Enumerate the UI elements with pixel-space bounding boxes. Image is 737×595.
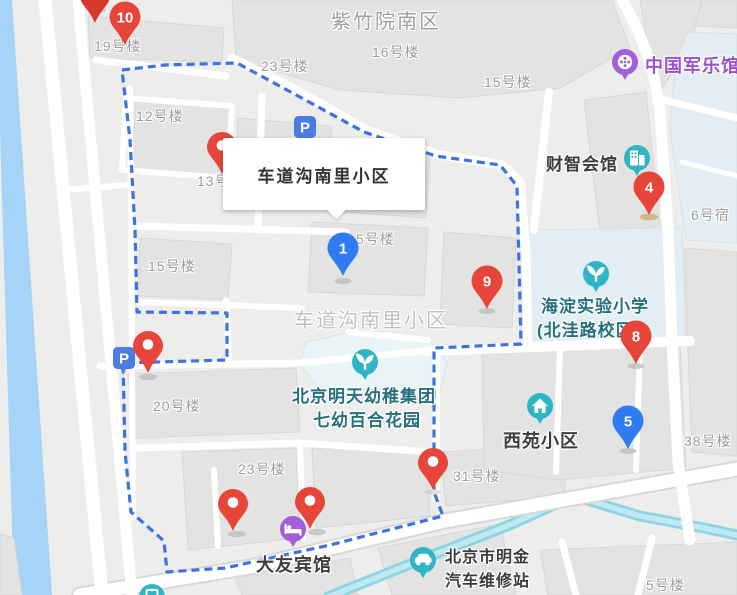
marker-10[interactable]: 10 [108, 0, 142, 49]
location-pin[interactable] [131, 329, 165, 377]
building-label: 16号楼 [372, 42, 420, 62]
building-label: 20号楼 [153, 396, 201, 416]
building-label: 23号楼 [261, 56, 309, 76]
info-window-title: 车道沟南里小区 [258, 162, 391, 187]
parking-letter: P [300, 120, 310, 137]
building-label: 38号楼 [684, 431, 732, 451]
car-icon[interactable] [408, 545, 438, 585]
location-pin[interactable] [293, 485, 327, 533]
music-reel-icon[interactable] [610, 47, 640, 87]
marker-4[interactable]: 4 [632, 169, 666, 219]
poi-label-dayou-hotel: 大友宾馆 [256, 551, 332, 577]
marker-number: 10 [117, 10, 134, 27]
poi-label-junyueguan: 中国军乐馆 [645, 52, 737, 78]
map-canvas[interactable]: 19号楼 12号楼 13号楼 23号楼 16号楼 15号楼 15号楼 5号楼 2… [0, 0, 737, 595]
marker-8[interactable]: 8 [619, 318, 653, 368]
marker-number: 5 [624, 414, 632, 431]
marker-number: 8 [632, 329, 640, 346]
marker-1[interactable]: 1 [326, 230, 360, 280]
poi-label-repair-line1: 北京市明金 [445, 543, 530, 567]
building-label: 5号楼 [646, 575, 685, 595]
building-label: 6号宿 [691, 205, 730, 225]
bus-icon[interactable] [137, 582, 167, 595]
marker-number: 9 [483, 274, 491, 291]
poi-label-repair-line2: 汽车维修站 [445, 567, 530, 591]
marker-9[interactable]: 9 [470, 263, 504, 313]
building-label: 31号楼 [453, 466, 501, 486]
marker-number: 1 [339, 241, 347, 258]
location-pin[interactable] [216, 487, 250, 535]
info-window[interactable]: 车道沟南里小区 [223, 138, 425, 210]
location-pin[interactable] [416, 446, 450, 494]
location-pin[interactable] [78, 0, 112, 27]
marker-5[interactable]: 5 [611, 403, 645, 453]
building-label: 12号楼 [136, 106, 184, 126]
district-label: 紫竹院南区 [331, 5, 441, 34]
building-label: 15号楼 [484, 72, 532, 92]
sprout-icon[interactable] [581, 259, 611, 299]
sprout-icon[interactable] [350, 347, 380, 387]
marker-number: 4 [645, 180, 654, 197]
parking-letter: P [119, 351, 129, 368]
house-icon[interactable] [525, 391, 555, 431]
poi-label-caizhi: 财智会馆 [546, 150, 618, 175]
building-label: 23号楼 [238, 459, 286, 479]
building-label: 5号楼 [356, 229, 395, 249]
poi-label-kindergarten-line2: 七幼百合花园 [313, 406, 421, 431]
estate-name-label: 车道沟南里小区 [294, 304, 448, 333]
building-label: 15号楼 [148, 256, 196, 276]
